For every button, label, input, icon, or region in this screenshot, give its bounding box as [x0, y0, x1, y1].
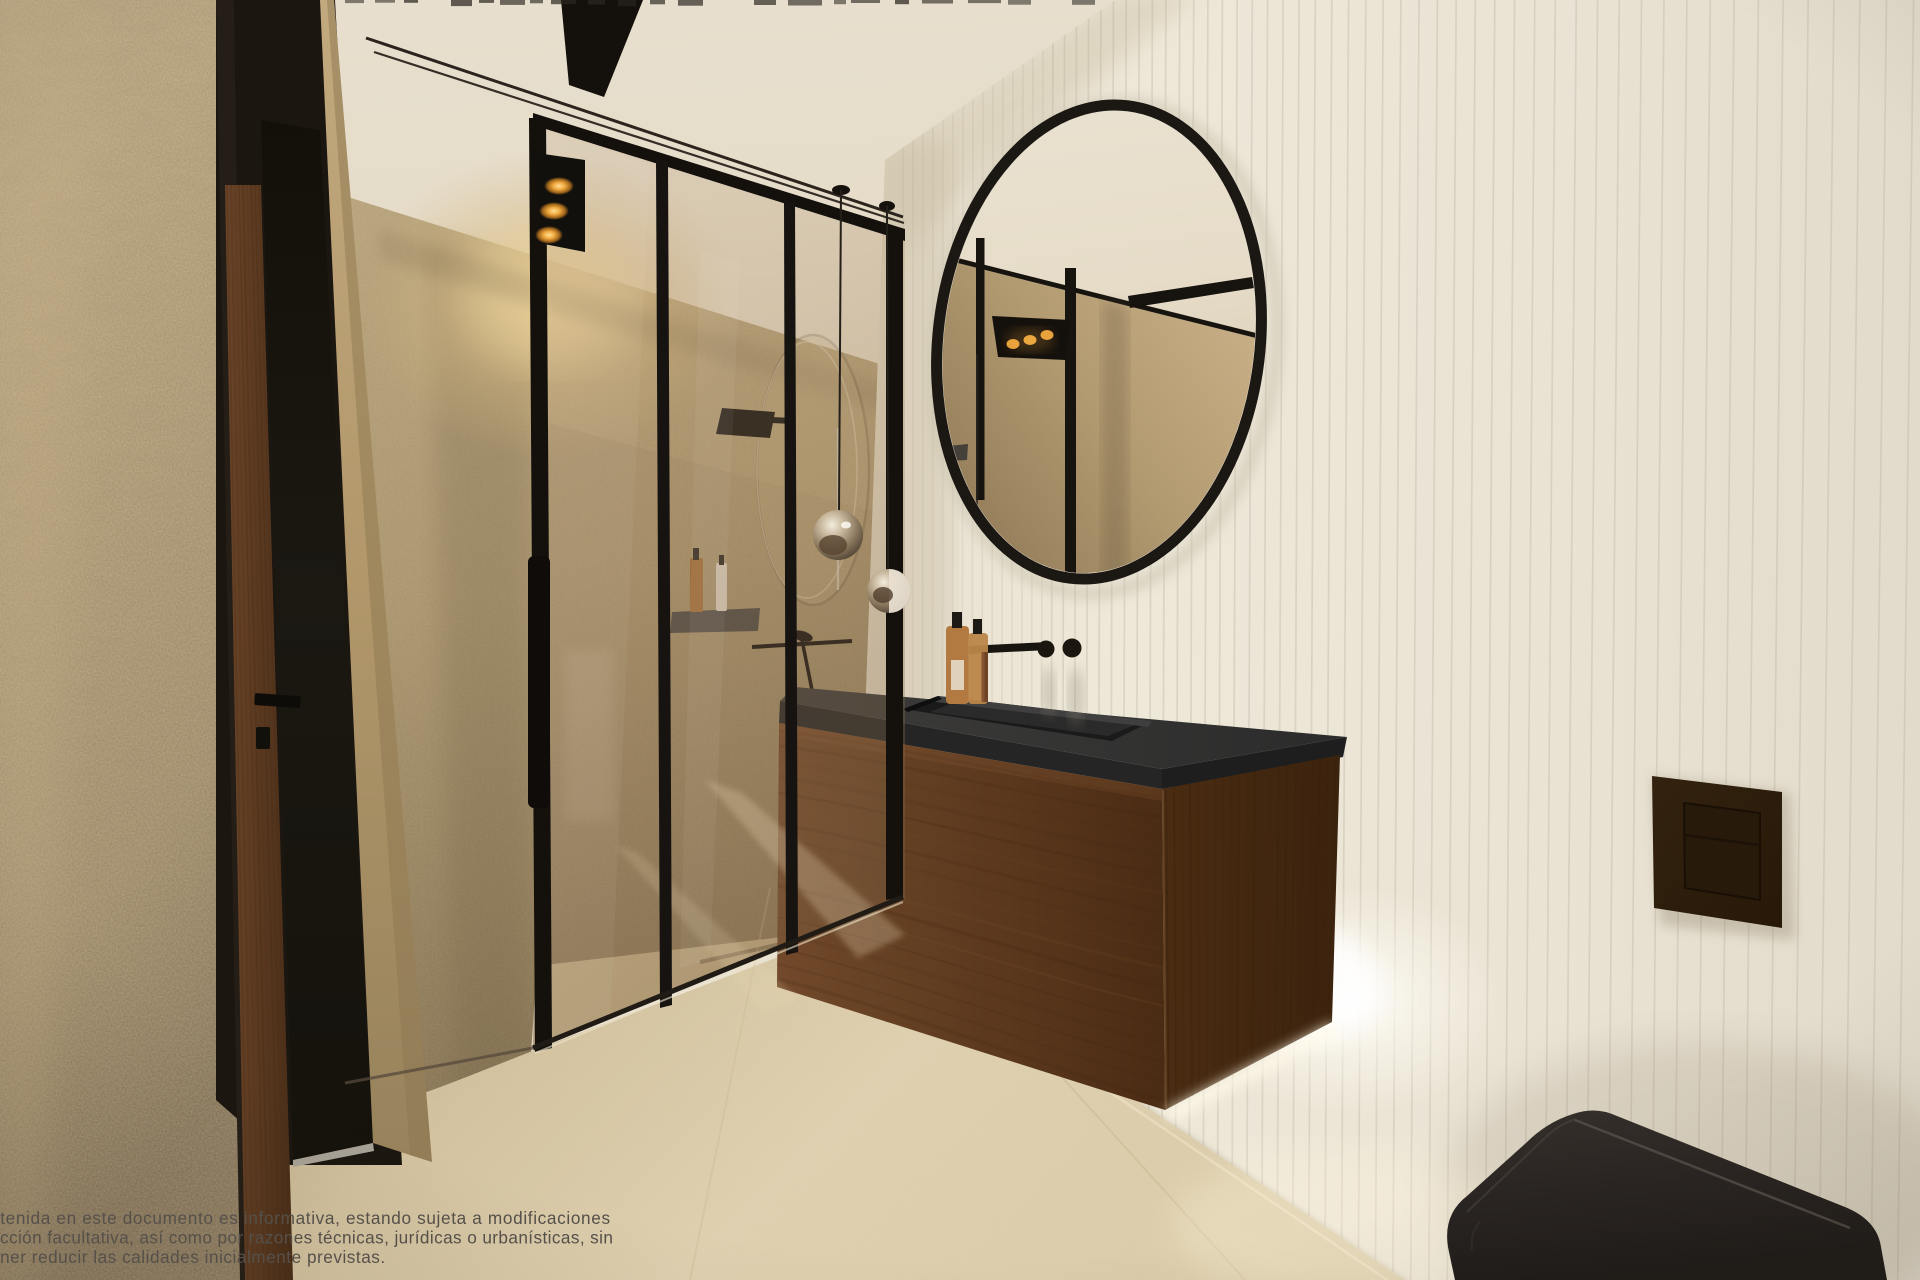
svg-text:ntenida en este documento es i: ntenida en este documento es informativa…	[0, 1208, 611, 1228]
svg-text:oner reducir las calidades ini: oner reducir las calidades inicialmente …	[0, 1247, 386, 1267]
svg-text:ección facultativa, así como p: ección facultativa, así como por razones…	[0, 1228, 613, 1248]
